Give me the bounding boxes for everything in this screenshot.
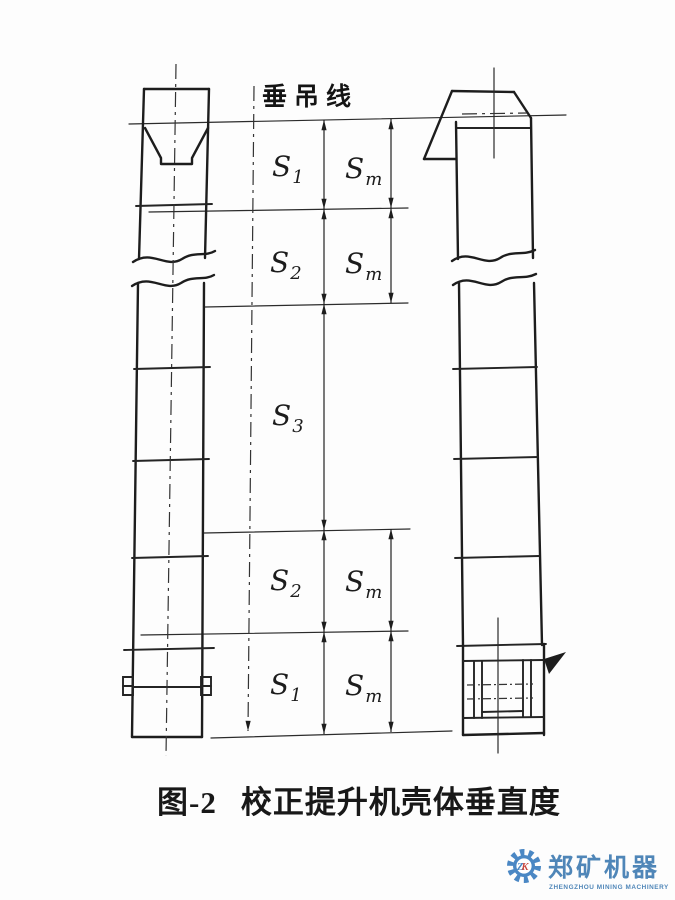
- head-section: [424, 68, 531, 159]
- dim-label-sm-4: Sm: [345, 669, 382, 707]
- scanned-figure-page: 垂吊线 S1 Sm S2 Sm S3 S2 Sm S1 Sm 图-2校正提升机壳…: [0, 0, 675, 900]
- dim-label-sm-2: Sm: [345, 247, 382, 285]
- dim-label-sm-1: Sm: [345, 152, 382, 190]
- plumb-line-label: 垂吊线: [262, 82, 358, 111]
- dim-label-s1-upper: S1: [272, 150, 304, 188]
- boot-section: [457, 618, 566, 753]
- left-casing: [123, 64, 215, 756]
- break-wave: [133, 251, 215, 262]
- dim-label-s2-upper: S2: [270, 246, 302, 284]
- break-wave: [452, 250, 535, 261]
- logo-monogram: ZK: [516, 862, 529, 873]
- logo-company-subtitle: ZHENGZHOU MINING MACHINERY: [549, 884, 669, 891]
- left-centerline: [166, 64, 176, 756]
- dim-label-s2-lower: S2: [270, 564, 302, 602]
- break-wave: [453, 274, 536, 285]
- plumb-line: [248, 86, 254, 731]
- logo-company-name: 郑矿机器: [548, 853, 660, 882]
- dim-label-s3: S3: [272, 399, 304, 437]
- dim-label-sm-3: Sm: [345, 565, 382, 603]
- figure-diagram: 垂吊线 S1 Sm S2 Sm S3 S2 Sm S1 Sm 图-2校正提升机壳…: [0, 0, 675, 900]
- company-logo: ZK 郑矿机器 ZHENGZHOU MINING MACHINERY: [511, 853, 670, 892]
- dim-label-s1-lower: S1: [270, 668, 302, 706]
- right-casing: [424, 68, 566, 753]
- dimension-lines: [324, 119, 391, 734]
- figure-caption: 图-2校正提升机壳体垂直度: [157, 785, 561, 820]
- weld-flag: [544, 652, 566, 674]
- feed-funnel: [145, 128, 208, 164]
